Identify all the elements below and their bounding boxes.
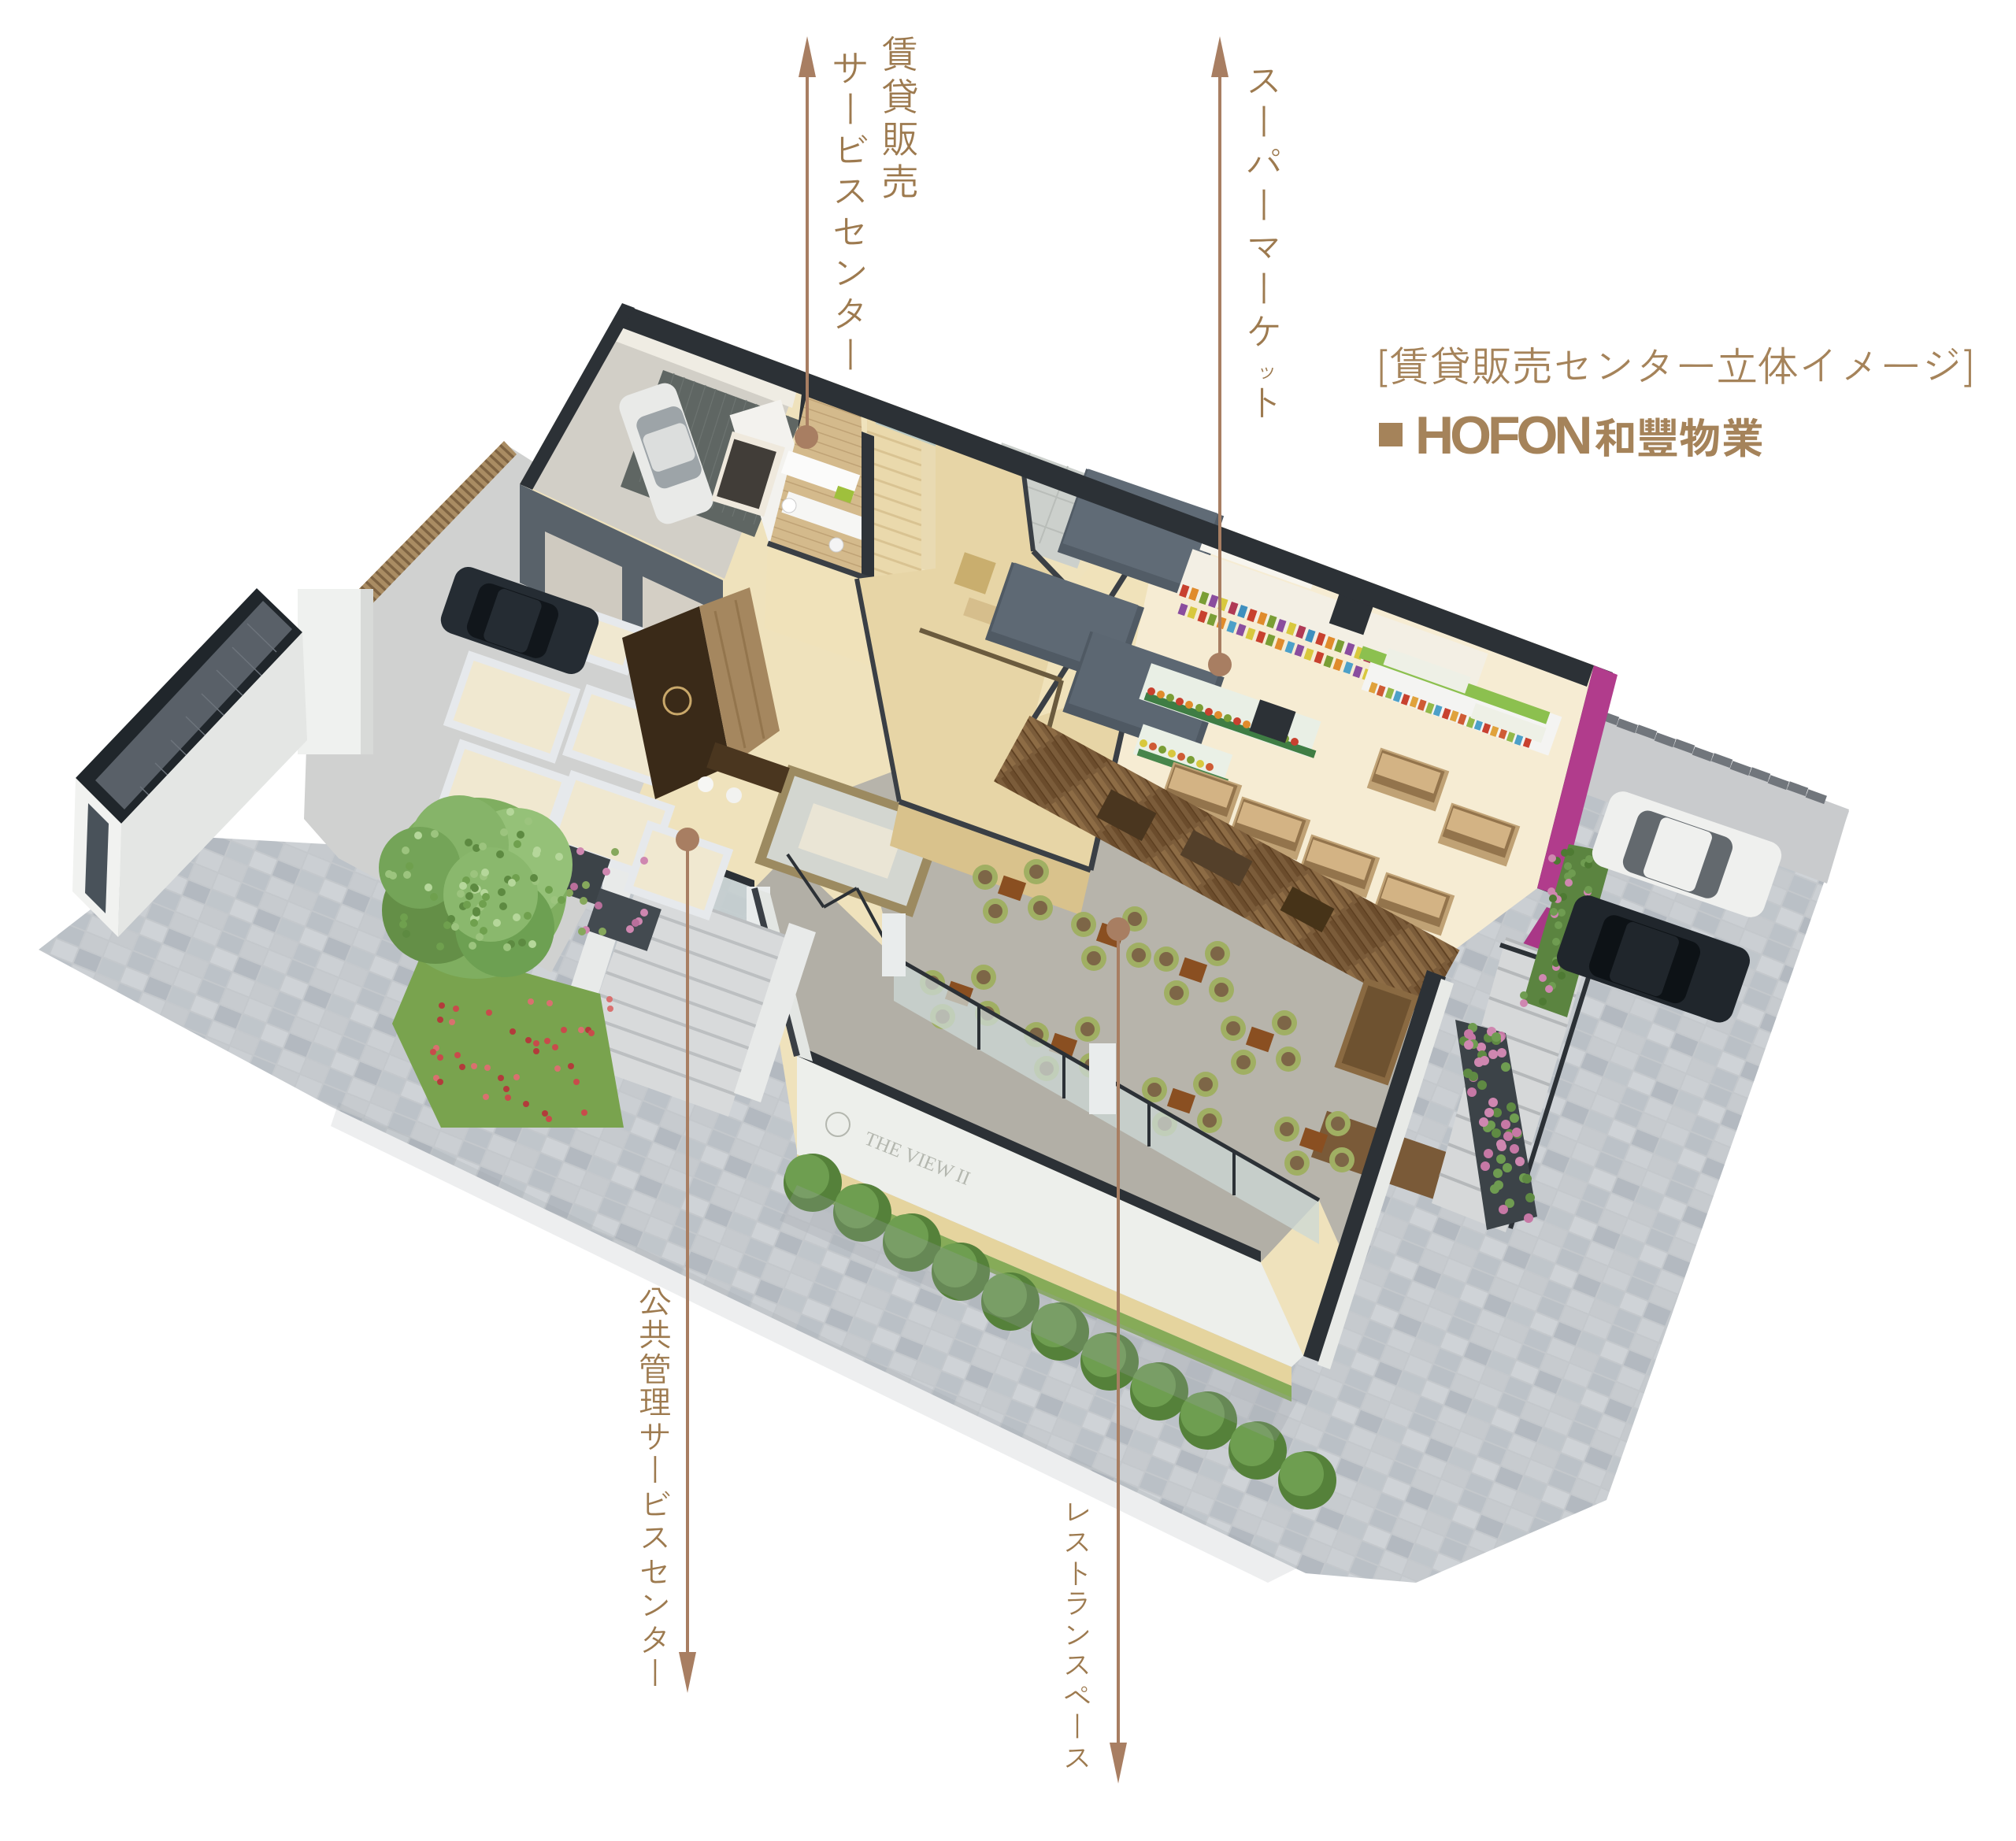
svg-text:HOFON: HOFON [1415,406,1589,465]
